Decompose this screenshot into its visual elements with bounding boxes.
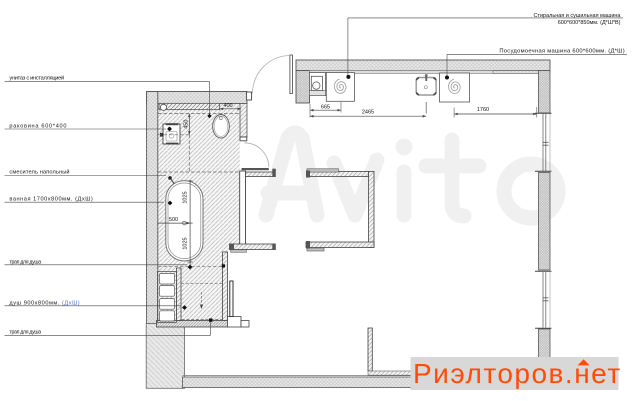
svg-text:Риэлторов.нет: Риэлторов.нет <box>413 358 622 389</box>
svg-text:трап для душа: трап для душа <box>9 330 41 336</box>
svg-text:раковина 600*400: раковина 600*400 <box>9 124 67 130</box>
svg-text:400: 400 <box>223 103 232 109</box>
svg-text:600*600*850мм. (Д*Ш*В): 600*600*850мм. (Д*Ш*В) <box>558 20 621 26</box>
svg-text:ванная 1700х800мм. (ДхШ): ванная 1700х800мм. (ДхШ) <box>9 197 93 203</box>
svg-text:унитаз с инсталляцией: унитаз с инсталляцией <box>9 75 64 82</box>
svg-text:500: 500 <box>169 217 178 223</box>
svg-text:2465: 2465 <box>362 110 374 116</box>
svg-text:1025: 1025 <box>183 237 189 249</box>
svg-text:450: 450 <box>183 120 189 129</box>
svg-text:1025: 1025 <box>183 191 189 203</box>
svg-text:665: 665 <box>321 104 330 110</box>
svg-text:1760: 1760 <box>477 107 489 113</box>
svg-text:Посудомоечная машина 600*600мм: Посудомоечная машина 600*600мм. (Д*Ш) <box>499 49 625 55</box>
svg-text:душ 900х800мм. (ДхШ): душ 900х800мм. (ДхШ) <box>9 300 80 306</box>
svg-text:смеситель напольный: смеситель напольный <box>9 169 69 176</box>
